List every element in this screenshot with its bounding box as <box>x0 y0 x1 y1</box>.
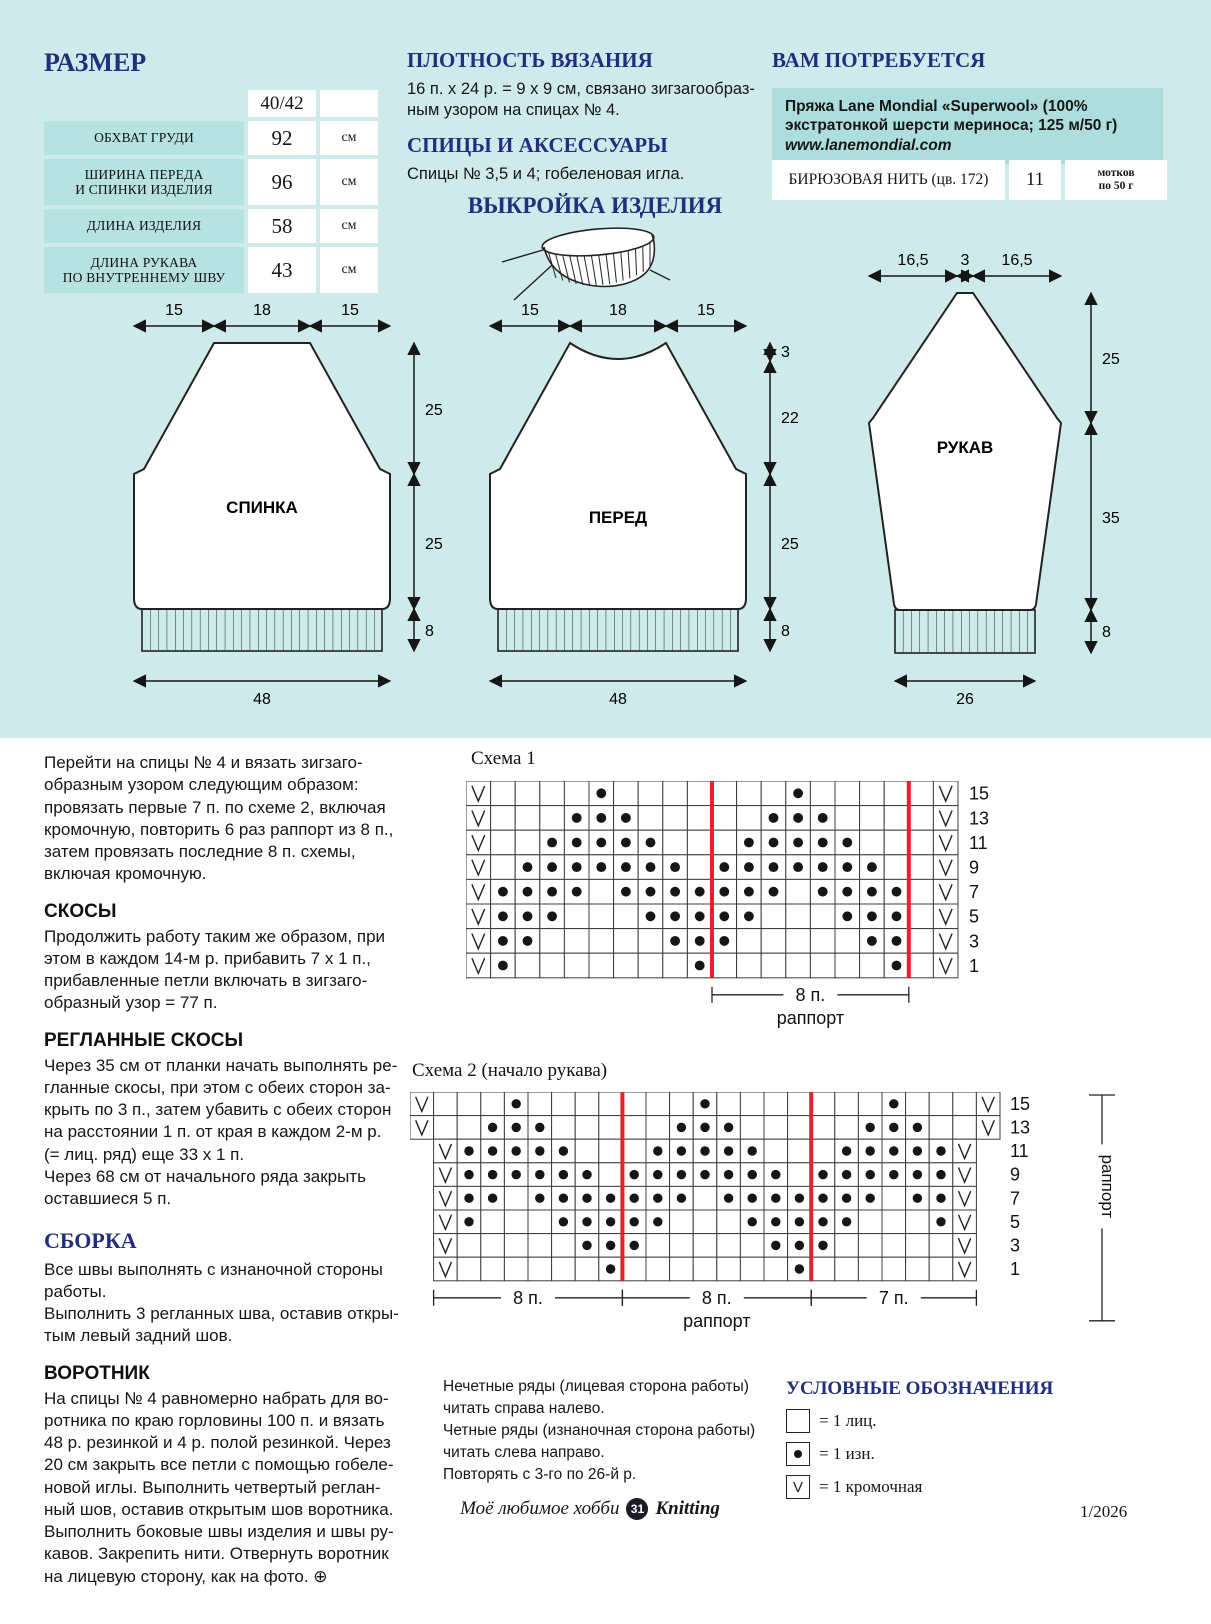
purl-dot-icon <box>670 887 680 897</box>
purl-dot-icon <box>769 862 779 872</box>
purl-dot-icon <box>488 1193 497 1202</box>
purl-dot-icon <box>769 887 779 897</box>
purl-dot-icon <box>771 1193 780 1202</box>
purl-dot-icon <box>889 1123 898 1132</box>
purl-dot-icon <box>547 862 557 872</box>
purl-dot-icon <box>744 887 754 897</box>
purl-dot-icon <box>865 1123 874 1132</box>
purl-dot-icon <box>488 1146 497 1155</box>
purl-dot-icon <box>535 1170 544 1179</box>
purl-dot-icon <box>582 1170 591 1179</box>
row-number: 15 <box>969 784 989 804</box>
purl-dot-icon <box>523 862 533 872</box>
purl-dot-icon <box>695 887 705 897</box>
purl-dot-icon <box>892 911 902 921</box>
yarn-website: www.lanemondial.com <box>785 136 1150 155</box>
size-row-label: ОБХВАТ ГРУДИ <box>44 121 244 155</box>
purl-dot-icon <box>511 1146 520 1155</box>
size-row-label: ШИРИНА ПЕРЕДА И СПИНКИ ИЗДЕЛИЯ <box>44 159 244 205</box>
purl-dot-icon <box>653 1193 662 1202</box>
issue-number: 1/2026 <box>1080 1502 1127 1522</box>
dim: 26 <box>956 691 974 708</box>
chart-row <box>434 1163 977 1187</box>
purl-dot-icon <box>572 862 582 872</box>
yarn-line1: Пряжа Lane Mondial «Superwool» (100% <box>785 97 1150 116</box>
legend: УСЛОВНЫЕ ОБОЗНАЧЕНИЯ = 1 лиц. = 1 изн. V… <box>786 1378 1053 1499</box>
purl-dot-icon <box>818 813 828 823</box>
purl-dot-icon <box>464 1193 473 1202</box>
purl-dot-icon <box>670 911 680 921</box>
purl-dot-icon <box>842 887 852 897</box>
plain-square-icon <box>786 1409 810 1433</box>
chart-row <box>434 1234 977 1258</box>
purl-dot-icon <box>523 887 533 897</box>
row-number: 3 <box>1010 1236 1020 1256</box>
row-number: 5 <box>969 907 979 927</box>
back-label: СПИНКА <box>226 498 298 517</box>
side-rapport-label: раппорт <box>1098 1155 1117 1219</box>
purl-dot-icon <box>719 887 729 897</box>
dim: 18 <box>609 302 627 319</box>
purl-dot-icon <box>842 838 852 848</box>
needles-title: СПИЦЫ И АКСЕССУАРЫ <box>407 133 668 158</box>
purl-dot-icon <box>793 813 803 823</box>
purl-dot-icon <box>818 1241 827 1250</box>
purl-dot-icon <box>724 1193 733 1202</box>
purl-dot-icon <box>795 1264 804 1273</box>
legend-title: УСЛОВНЫЕ ОБОЗНАЧЕНИЯ <box>786 1378 1053 1400</box>
schematic-back: СПИНКА 15 18 15 25 25 8 48 <box>92 293 452 713</box>
needles-text: Спицы № 3,5 и 4; гобеленовая игла. <box>407 164 767 185</box>
purl-dot-icon <box>913 1193 922 1202</box>
instruction-paragraph: Продолжить работу таким же образом, при … <box>44 926 448 1015</box>
purl-dot-icon <box>464 1170 473 1179</box>
purl-dot-icon <box>793 862 803 872</box>
bracket-label: 8 п. <box>796 985 826 1005</box>
purl-dot-icon <box>889 1099 898 1108</box>
purl-dot-icon <box>596 838 606 848</box>
purl-dot-icon <box>695 911 705 921</box>
purl-dot-icon <box>535 1193 544 1202</box>
size-row-value: 43 <box>248 247 316 293</box>
dim: 8 <box>425 623 434 640</box>
chart-reading-notes: Нечетные ряды (лицевая сторона работы) ч… <box>443 1376 788 1486</box>
chart-row <box>410 1116 1000 1140</box>
size-header: 40/42 <box>248 90 316 117</box>
row-number: 1 <box>969 956 979 976</box>
chart-row <box>434 1186 977 1210</box>
purl-dot-icon <box>559 1146 568 1155</box>
purl-dot-icon <box>771 1217 780 1226</box>
purl-dot-icon <box>747 1170 756 1179</box>
bracket-sublabel: раппорт <box>777 1008 844 1028</box>
dim: 15 <box>165 302 183 319</box>
row-number: 5 <box>1010 1212 1020 1232</box>
legend-item: V = 1 кромочная <box>786 1475 1053 1499</box>
chart-row <box>434 1210 977 1234</box>
purl-dot-icon <box>747 1193 756 1202</box>
purl-dot-icon <box>646 838 656 848</box>
purl-dot-icon <box>677 1193 686 1202</box>
purl-dot-icon <box>795 1193 804 1202</box>
purl-dot-icon <box>818 1170 827 1179</box>
size-row-label: ДЛИНА ИЗДЕЛИЯ <box>44 209 244 243</box>
purl-dot-icon <box>621 813 631 823</box>
dim: 25 <box>1102 351 1120 368</box>
purl-dot-icon <box>700 1170 709 1179</box>
schematic-sleeve: РУКАВ 16,5 3 16,5 25 35 8 26 <box>795 238 1140 713</box>
purl-dot-icon <box>559 1217 568 1226</box>
row-number: 9 <box>1010 1165 1020 1185</box>
knitting-chart-2: 151311975318 п.8 п.раппорт7 п.раппорт <box>410 1092 1165 1350</box>
purl-dot-icon <box>547 887 557 897</box>
purl-dot-icon <box>771 1170 780 1179</box>
section-heading: РЕГЛАННЫЕ СКОСЫ <box>44 1030 448 1052</box>
bracket-sublabel: раппорт <box>683 1311 750 1331</box>
legend-item: = 1 изн. <box>786 1442 1053 1466</box>
purl-dot-icon <box>842 911 852 921</box>
section-heading: ВОРОТНИК <box>44 1363 448 1385</box>
size-table-corner <box>44 90 244 117</box>
purl-dot-icon <box>867 862 877 872</box>
row-number: 11 <box>969 833 988 853</box>
purl-dot-icon <box>793 838 803 848</box>
front-outline <box>490 343 746 609</box>
dim: 25 <box>425 402 443 419</box>
purl-dot-icon <box>582 1241 591 1250</box>
purl-dot-icon <box>582 1217 591 1226</box>
purl-dot-icon <box>818 838 828 848</box>
purl-dot-icon <box>865 1146 874 1155</box>
dim: 15 <box>697 302 715 319</box>
size-table: 40/42 ОБХВАТ ГРУДИ 92 см ШИРИНА ПЕРЕДА И… <box>44 90 378 293</box>
purl-dot-icon <box>511 1099 520 1108</box>
purl-dot-icon <box>724 1170 733 1179</box>
dim: 8 <box>781 623 790 640</box>
purl-dot-icon <box>724 1123 733 1132</box>
chart-row <box>410 1092 1000 1116</box>
size-title: РАЗМЕР <box>44 48 146 78</box>
purl-dot-icon <box>936 1217 945 1226</box>
dim: 15 <box>521 302 539 319</box>
row-number: 13 <box>969 808 989 828</box>
purl-dot-icon <box>913 1123 922 1132</box>
purl-dot-icon <box>498 887 508 897</box>
purl-dot-icon <box>670 862 680 872</box>
purl-dot-icon <box>621 862 631 872</box>
row-number: 9 <box>969 857 979 877</box>
yarn-skein-count: 11 <box>1009 160 1061 200</box>
dim: 8 <box>1102 624 1111 641</box>
row-number: 3 <box>969 931 979 951</box>
purl-dot-icon <box>582 1193 591 1202</box>
purl-dot-icon <box>719 936 729 946</box>
purl-dot-icon <box>488 1123 497 1132</box>
purl-dot-icon <box>629 1193 638 1202</box>
instruction-paragraph: Все швы выполнять с изнаночной стороны р… <box>44 1259 448 1348</box>
instruction-paragraph: На спицы № 4 равномерно набрать для во- … <box>44 1388 448 1588</box>
purl-dot-icon <box>670 936 680 946</box>
purl-dot-icon <box>769 813 779 823</box>
purl-dot-icon <box>744 911 754 921</box>
purl-dot-icon <box>795 1217 804 1226</box>
purl-dot-icon <box>629 1170 638 1179</box>
purl-dot-icon <box>511 1123 520 1132</box>
size-row-value: 58 <box>248 209 316 243</box>
purl-dot-icon <box>865 1193 874 1202</box>
magazine-name: Моё любимое хобби <box>460 1498 619 1520</box>
knitting-chart-1: 151311975318 п.раппорт <box>466 781 1026 1043</box>
dim: 48 <box>253 691 271 708</box>
purl-dot-icon <box>498 911 508 921</box>
purl-dot-icon <box>498 936 508 946</box>
purl-dot-icon <box>646 862 656 872</box>
purl-dot-icon <box>621 887 631 897</box>
purl-dot-icon <box>572 838 582 848</box>
purl-dot-icon <box>747 1217 756 1226</box>
size-row-unit: см <box>320 159 378 205</box>
size-row-value: 96 <box>248 159 316 205</box>
legend-item-label: = 1 лиц. <box>819 1411 877 1431</box>
purl-dot-icon <box>629 1241 638 1250</box>
page-footer: Моё любимое хобби 31 Knitting <box>380 1498 800 1520</box>
purl-dot-icon <box>523 911 533 921</box>
purl-dot-icon <box>744 862 754 872</box>
purl-dot-icon <box>700 1146 709 1155</box>
purl-dot-icon <box>936 1146 945 1155</box>
legend-item: = 1 лиц. <box>786 1409 1053 1433</box>
gauge-title: ПЛОТНОСТЬ ВЯЗАНИЯ <box>407 48 653 73</box>
dim: 25 <box>425 536 443 553</box>
purl-dot-icon <box>695 936 705 946</box>
chart-row <box>434 1139 977 1163</box>
purl-dot-icon <box>606 1193 615 1202</box>
bracket-label: 8 п. <box>702 1288 732 1308</box>
purl-dot-icon <box>606 1217 615 1226</box>
dim: 18 <box>253 302 271 319</box>
purl-dot-icon <box>596 862 606 872</box>
dim: 3 <box>781 344 790 361</box>
purl-dot-icon <box>719 911 729 921</box>
purl-dot-icon <box>606 1264 615 1273</box>
purl-dot-icon <box>535 1123 544 1132</box>
purl-dot-icon <box>677 1170 686 1179</box>
purl-dot-icon <box>744 838 754 848</box>
magazine-brand: Knitting <box>655 1498 719 1520</box>
purl-dot-icon <box>842 862 852 872</box>
row-number: 1 <box>1010 1259 1020 1279</box>
yarn-line2: экстратонкой шерсти мериноса; 125 м/50 г… <box>785 116 1150 135</box>
purl-dot-icon <box>700 1123 709 1132</box>
dot-square-icon <box>786 1442 810 1466</box>
dim: 16,5 <box>897 252 928 269</box>
dim: 15 <box>341 302 359 319</box>
purl-dot-icon <box>724 1146 733 1155</box>
purl-dot-icon <box>842 1193 851 1202</box>
purl-dot-icon <box>865 1170 874 1179</box>
purl-dot-icon <box>867 887 877 897</box>
purl-dot-icon <box>547 838 557 848</box>
front-label: ПЕРЕД <box>589 508 647 527</box>
back-outline <box>134 343 390 609</box>
purl-dot-icon <box>793 788 803 798</box>
purl-dot-icon <box>892 887 902 897</box>
chart1-title: Схема 1 <box>471 748 536 770</box>
row-number: 13 <box>1010 1118 1030 1138</box>
purl-dot-icon <box>646 887 656 897</box>
instruction-paragraph: Через 35 см от планки начать выполнять р… <box>44 1055 448 1211</box>
purl-dot-icon <box>818 862 828 872</box>
bracket-label: 7 п. <box>879 1288 909 1308</box>
purl-dot-icon <box>535 1146 544 1155</box>
purl-dot-icon <box>889 1170 898 1179</box>
purl-dot-icon <box>606 1241 615 1250</box>
purl-dot-icon <box>818 1217 827 1226</box>
purl-dot-icon <box>867 936 877 946</box>
chart-row <box>434 1257 977 1281</box>
materials-title: ВАМ ПОТРЕБУЕТСЯ <box>772 48 985 73</box>
purl-dot-icon <box>700 1099 709 1108</box>
assembly-heading: СБОРКА <box>44 1228 448 1254</box>
dim: 3 <box>961 252 970 269</box>
purl-dot-icon <box>677 1146 686 1155</box>
section-heading: СКОСЫ <box>44 901 448 923</box>
dim: 48 <box>609 691 627 708</box>
purl-dot-icon <box>572 813 582 823</box>
purl-dot-icon <box>559 1170 568 1179</box>
purl-dot-icon <box>747 1146 756 1155</box>
purl-dot-icon <box>913 1170 922 1179</box>
gauge-text: 16 п. х 24 р. = 9 х 9 см, связано зигзаг… <box>407 79 767 121</box>
purl-dot-icon <box>936 1193 945 1202</box>
row-number: 7 <box>969 882 979 902</box>
purl-dot-icon <box>889 1146 898 1155</box>
size-row-unit: см <box>320 209 378 243</box>
row-number: 11 <box>1010 1141 1029 1161</box>
purl-dot-icon <box>936 1170 945 1179</box>
purl-dot-icon <box>464 1146 473 1155</box>
purl-dot-icon <box>795 1241 804 1250</box>
instruction-paragraph: Перейти на спицы № 4 и вязать зигзаго- о… <box>44 752 448 886</box>
purl-dot-icon <box>677 1123 686 1132</box>
size-header-unit <box>320 90 378 117</box>
purl-dot-icon <box>523 936 533 946</box>
bracket-label: 8 п. <box>513 1288 543 1308</box>
purl-dot-icon <box>547 911 557 921</box>
purl-dot-icon <box>769 838 779 848</box>
front-ribbing <box>498 609 738 651</box>
dim: 35 <box>1102 510 1120 527</box>
purl-dot-icon <box>653 1217 662 1226</box>
size-row-unit: см <box>320 247 378 293</box>
magazine-page: РАЗМЕР 40/42 ОБХВАТ ГРУДИ 92 см ШИРИНА П… <box>0 0 1211 1624</box>
purl-dot-icon <box>842 1146 851 1155</box>
purl-dot-icon <box>596 788 606 798</box>
yarn-color-name: БИРЮЗОВАЯ НИТЬ (цв. 172) <box>772 160 1005 200</box>
sleeve-ribbing <box>895 610 1035 653</box>
purl-dot-icon <box>498 961 508 971</box>
purl-dot-icon <box>559 1193 568 1202</box>
layout-title: ВЫКРОЙКА ИЗДЕЛИЯ <box>430 193 760 219</box>
purl-dot-icon <box>771 1241 780 1250</box>
legend-item-label: = 1 изн. <box>819 1444 875 1464</box>
row-number: 7 <box>1010 1188 1020 1208</box>
back-ribbing <box>142 609 382 651</box>
size-row-unit: см <box>320 121 378 155</box>
size-row-value: 92 <box>248 121 316 155</box>
purl-dot-icon <box>695 961 705 971</box>
purl-dot-icon <box>646 911 656 921</box>
chart2-title: Схема 2 (начало рукава) <box>412 1060 607 1082</box>
purl-dot-icon <box>653 1146 662 1155</box>
legend-item-label: = 1 кромочная <box>819 1477 922 1497</box>
page-number-badge: 31 <box>626 1498 648 1520</box>
yarn-info-box: Пряжа Lane Mondial «Superwool» (100% экс… <box>772 88 1163 164</box>
purl-dot-icon <box>719 862 729 872</box>
purl-dot-icon <box>488 1170 497 1179</box>
purl-dot-icon <box>892 936 902 946</box>
purl-dot-icon <box>842 1170 851 1179</box>
purl-dot-icon <box>621 838 631 848</box>
yarn-color-row: БИРЮЗОВАЯ НИТЬ (цв. 172) 11 мотков по 50… <box>772 160 1163 200</box>
purl-dot-icon <box>596 813 606 823</box>
row-number: 15 <box>1010 1094 1030 1114</box>
purl-dot-icon <box>464 1217 473 1226</box>
purl-dot-icon <box>867 911 877 921</box>
purl-dot-icon <box>818 1193 827 1202</box>
purl-dot-icon <box>892 961 902 971</box>
yarn-skein-unit: мотков по 50 г <box>1065 160 1167 200</box>
purl-dot-icon <box>629 1217 638 1226</box>
dim: 16,5 <box>1001 252 1032 269</box>
instructions-column: Перейти на спицы № 4 и вязать зигзаго- о… <box>44 752 448 1588</box>
purl-dot-icon <box>913 1146 922 1155</box>
v-square-icon: V <box>786 1475 810 1499</box>
purl-dot-icon <box>842 1217 851 1226</box>
purl-dot-icon <box>818 887 828 897</box>
purl-dot-icon <box>511 1170 520 1179</box>
purl-dot-icon <box>653 1170 662 1179</box>
sleeve-label: РУКАВ <box>937 438 994 457</box>
size-row-label: ДЛИНА РУКАВА ПО ВНУТРЕННЕМУ ШВУ <box>44 247 244 293</box>
schematic-front: ПЕРЕД 15 18 15 3 22 25 8 48 <box>448 293 808 713</box>
purl-dot-icon <box>572 887 582 897</box>
